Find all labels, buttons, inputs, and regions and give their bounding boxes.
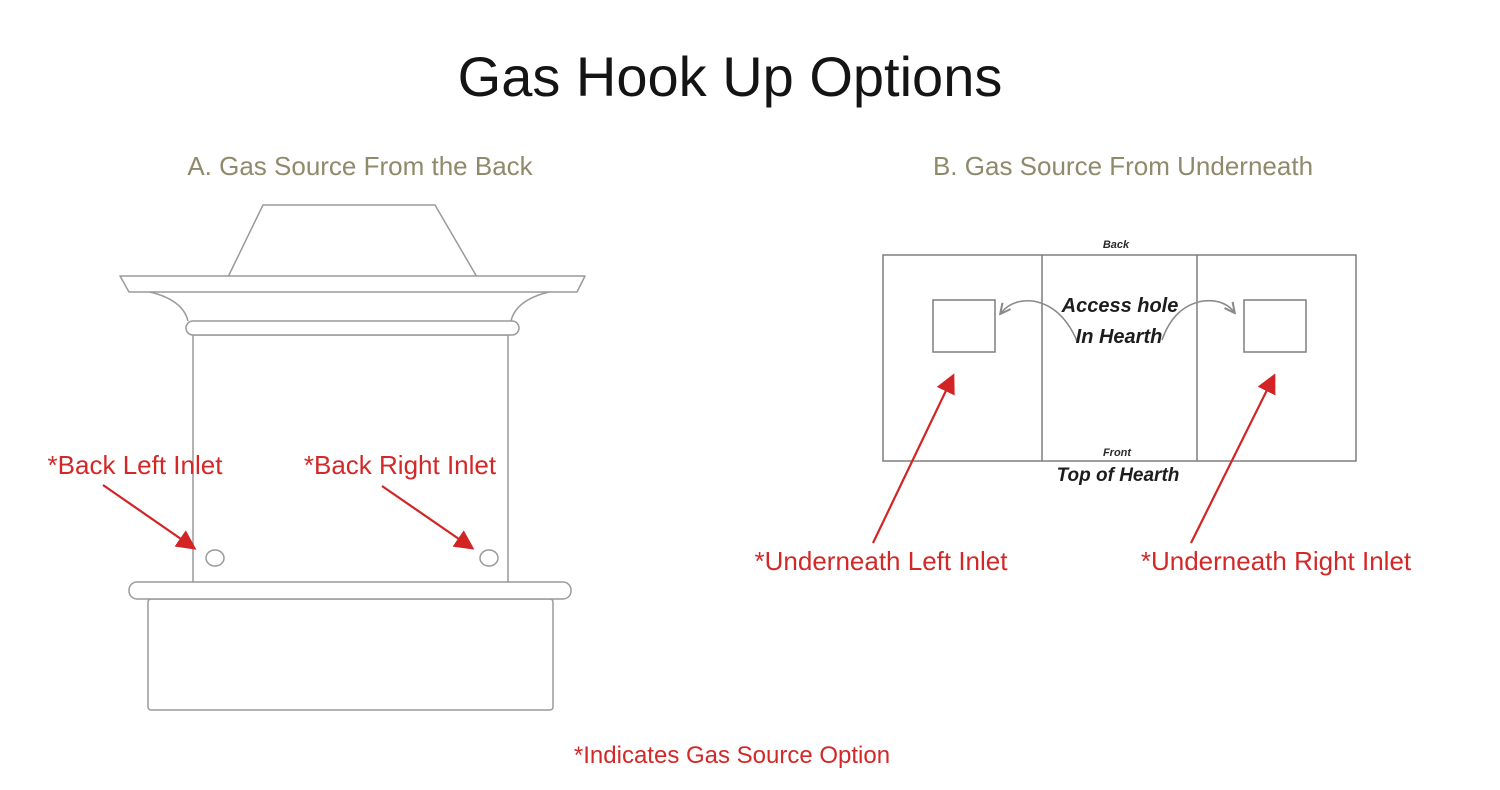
- back-right-inlet-label: *Back Right Inlet: [304, 450, 496, 481]
- back-left-inlet-hole: [206, 550, 224, 566]
- section-b-heading: B. Gas Source From Underneath: [933, 151, 1313, 182]
- access-hole-right: [1244, 300, 1306, 352]
- molding-bar: [186, 321, 519, 335]
- back-right-inlet-hole: [480, 550, 498, 566]
- gas-source-footnote: *Indicates Gas Source Option: [574, 742, 890, 770]
- access-hole-label-line1: Access hole: [1062, 295, 1179, 318]
- back-left-inlet-arrow: [103, 485, 194, 548]
- underneath-left-inlet-label: *Underneath Left Inlet: [755, 546, 1008, 577]
- hearth-top-plan-drawing: [883, 255, 1356, 461]
- cove-curve-left: [150, 292, 188, 321]
- hearth-front-label: Front: [1103, 447, 1131, 459]
- hearth-outline: [883, 255, 1356, 461]
- access-hole-label-line2: In Hearth: [1076, 326, 1163, 349]
- mantel-cap: [120, 276, 585, 292]
- page-title: Gas Hook Up Options: [458, 44, 1003, 109]
- gas-hookup-options-page: Gas Hook Up Options A. Gas Source From t…: [0, 0, 1500, 790]
- cove-curve-right: [511, 292, 549, 321]
- access-hole-left: [933, 300, 995, 352]
- hearth-base: [148, 599, 553, 710]
- hearth-back-label: Back: [1103, 239, 1129, 251]
- back-left-inlet-label: *Back Left Inlet: [48, 450, 223, 481]
- chimney-shape: [228, 205, 477, 277]
- underneath-right-inlet-label: *Underneath Right Inlet: [1141, 546, 1411, 577]
- diagram-canvas: [0, 0, 1500, 790]
- section-a-heading: A. Gas Source From the Back: [187, 151, 532, 182]
- hearth-top-bar: [129, 582, 571, 599]
- top-of-hearth-label: Top of Hearth: [1057, 465, 1180, 487]
